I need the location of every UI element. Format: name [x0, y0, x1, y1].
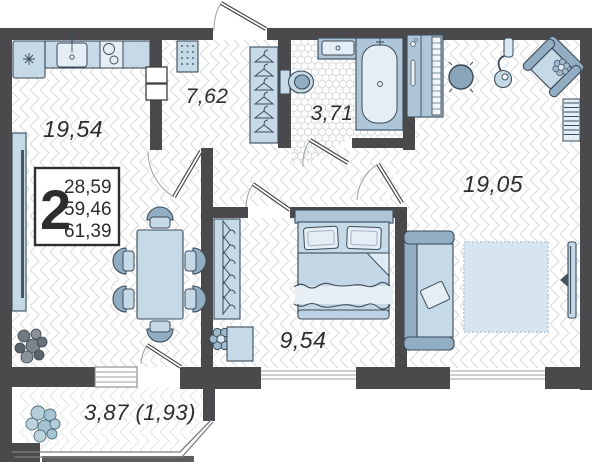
total-area-value: 61,39 [64, 221, 112, 242]
kitchen-dining-area-label: 19,54 [43, 116, 103, 142]
living-room-area-label: 19,05 [463, 171, 523, 197]
fridge-icon [13, 41, 45, 78]
living-room-window [450, 369, 545, 386]
hallway-area-label: 7,62 [186, 85, 229, 108]
bed-icon [294, 210, 393, 319]
floor-plan-page: 2 28,59 59,46 61,39 19,54 7,62 3,71 19,0… [0, 0, 600, 462]
piano-icon [407, 35, 443, 117]
unit-summary-box: 2 28,59 59,46 61,39 [35, 168, 119, 245]
hallway-wardrobe [250, 47, 278, 143]
vent-shaft-icon [146, 67, 167, 100]
sofa-icon [404, 231, 454, 350]
bathtub-icon [356, 38, 403, 130]
floor-plan: 2 28,59 59,46 61,39 19,54 7,62 3,71 19,0… [0, 0, 600, 462]
cooktop-icon [100, 41, 123, 68]
bedroom-wardrobe [214, 219, 240, 319]
bedroom-area-label: 9,54 [280, 327, 327, 353]
tv-unit-icon [12, 133, 26, 311]
apartment-area-value: 59,46 [64, 199, 112, 220]
radiator-icon [563, 99, 580, 141]
bedroom-window [261, 369, 356, 386]
shoe-cabinet-icon [177, 41, 198, 72]
balcony-area-label: 3,87 (1,93) [84, 400, 196, 425]
living-area-value: 28,59 [64, 177, 112, 198]
rug [464, 242, 548, 332]
toilet-icon [280, 70, 314, 94]
bathroom-area-label: 3,71 [311, 102, 354, 125]
kitchen-balcony-window [95, 367, 137, 387]
